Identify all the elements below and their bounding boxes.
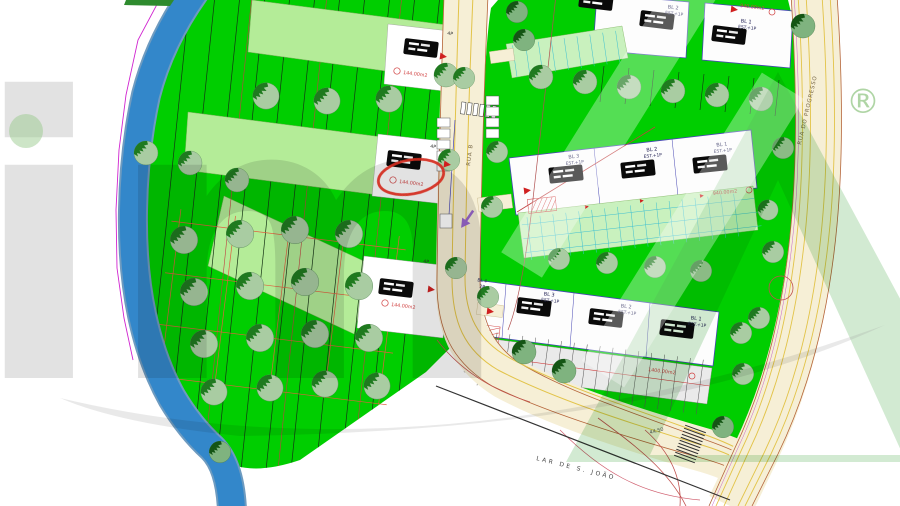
tree-icon	[762, 241, 784, 263]
tree-icon	[730, 322, 752, 344]
watermark-registered-icon: ®	[846, 82, 880, 122]
tree-icon	[791, 14, 815, 38]
tree-icon	[529, 65, 553, 89]
tree-icon	[712, 416, 734, 438]
tree-icon	[512, 340, 536, 364]
tree-icon	[748, 307, 770, 329]
block-name: BL 2	[646, 146, 658, 153]
tree-icon	[705, 83, 729, 107]
site-plan-map: 4P 144.00m2 4P 144.00m2 4P 144.00m2 BL 2…	[0, 0, 900, 506]
tree-icon	[513, 29, 535, 51]
tree-icon	[552, 359, 576, 383]
site-plan-screenshot: 4P 144.00m2 4P 144.00m2 4P 144.00m2 BL 2…	[0, 0, 900, 506]
watermark-i-dot	[9, 114, 43, 148]
tree-icon	[661, 79, 685, 103]
tree-icon	[573, 70, 597, 94]
hedge-strip	[124, 0, 174, 6]
tree-icon	[596, 252, 618, 274]
